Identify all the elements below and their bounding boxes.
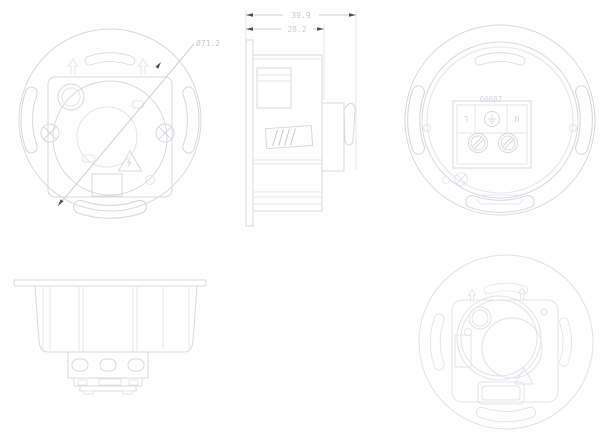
dimension-arrowhead bbox=[349, 13, 356, 16]
mounting-plate bbox=[48, 77, 172, 197]
mounting-slot bbox=[430, 314, 444, 370]
iso-outer-circle bbox=[419, 255, 593, 429]
overall-depth-dimension-label: 39.9 bbox=[291, 11, 310, 20]
back-outer-circle bbox=[405, 25, 595, 215]
terminal-screw-icon bbox=[469, 134, 488, 153]
dimension-arrowhead bbox=[156, 62, 162, 69]
detail-hole bbox=[541, 309, 547, 315]
wire-entry-hole bbox=[128, 359, 144, 371]
front-opening-circle bbox=[53, 81, 167, 195]
iso-center-boss bbox=[482, 318, 542, 378]
side-top-block bbox=[257, 68, 291, 108]
overall-depth-dimension: 39.9 bbox=[246, 11, 356, 20]
wire-entry-hole bbox=[100, 359, 116, 371]
recess-depth-dimension: 28.2 bbox=[246, 25, 324, 34]
front-diameter-dimension-label: Ø71.2 bbox=[196, 38, 220, 48]
warning-triangle-icon bbox=[119, 151, 142, 171]
mounting-slot bbox=[85, 53, 135, 65]
part-number-text: 00687 bbox=[480, 95, 503, 104]
rear-block bbox=[322, 103, 344, 171]
dimension-arrowhead bbox=[246, 27, 253, 30]
bottom-cutout bbox=[92, 174, 122, 196]
recess-depth-dimension-label: 28.2 bbox=[287, 25, 306, 34]
wire-entry-hole bbox=[72, 359, 88, 371]
mounting-slot bbox=[475, 53, 525, 65]
detail-hole bbox=[465, 329, 472, 336]
terminal-housing bbox=[68, 352, 148, 378]
technical-drawing-canvas: Ø71.2 39.9 28.2 bbox=[0, 0, 602, 440]
terminal-screw-icon bbox=[499, 134, 518, 153]
front-view-drawing: Ø71.2 bbox=[19, 29, 220, 218]
detail-hole bbox=[146, 176, 155, 185]
up-arrow-icon bbox=[69, 59, 78, 74]
isometric-view-drawing bbox=[419, 255, 593, 429]
iso-ring-inner bbox=[461, 300, 537, 376]
terminal-neutral-label: N bbox=[515, 115, 520, 124]
front-outer-circle bbox=[19, 29, 201, 211]
dimension-arrowhead bbox=[317, 27, 324, 30]
side-profile bbox=[246, 40, 355, 226]
front-inner-circle bbox=[77, 107, 137, 167]
spring-clamp bbox=[265, 125, 312, 148]
up-arrow-icon bbox=[139, 59, 148, 74]
earth-ground-icon bbox=[485, 112, 500, 127]
drawing-sheet: Ø71.2 39.9 28.2 bbox=[0, 0, 602, 440]
terminal-live-label: L bbox=[463, 114, 468, 123]
iso-bottom-box bbox=[478, 382, 524, 404]
mounting-slot bbox=[476, 407, 535, 422]
front-diameter-dimension: Ø71.2 bbox=[58, 38, 220, 206]
mounting-slot bbox=[560, 318, 572, 367]
side-view-drawing: 39.9 28.2 bbox=[246, 10, 356, 226]
body-outline bbox=[35, 286, 197, 352]
terminal-block: 00687 L N bbox=[453, 95, 531, 168]
detail-capsule bbox=[132, 101, 144, 108]
back-view-drawing: 00687 L N bbox=[405, 25, 595, 215]
phillips-screw-icon bbox=[156, 124, 174, 142]
mounting-slot bbox=[21, 87, 37, 153]
bottom-elevation-drawing bbox=[14, 280, 206, 394]
dimension-arrowhead bbox=[246, 13, 253, 16]
mounting-slot bbox=[74, 200, 147, 218]
detail-hole bbox=[443, 177, 450, 184]
mounting-slot bbox=[183, 87, 199, 153]
front-flange bbox=[246, 40, 253, 226]
phillips-screw-icon bbox=[41, 124, 59, 142]
fixing-claw bbox=[344, 103, 355, 145]
back-plate-circle bbox=[422, 42, 578, 198]
